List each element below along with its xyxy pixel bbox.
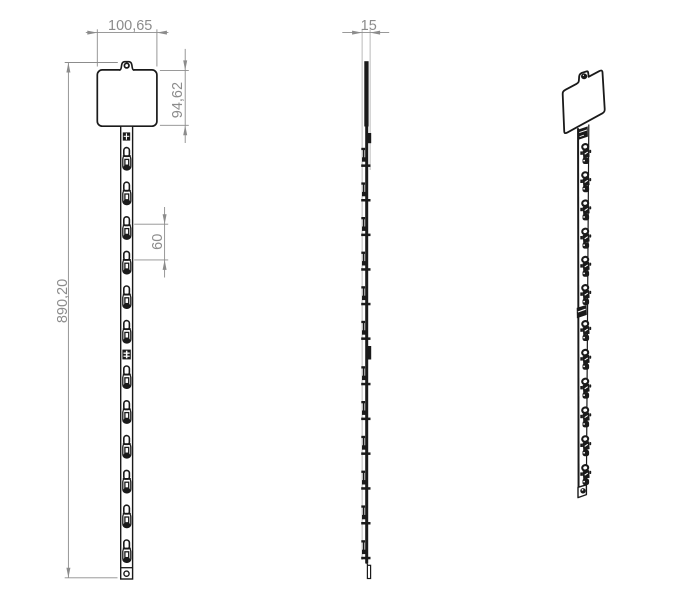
svg-text:60: 60 — [150, 234, 166, 250]
svg-text:890,20: 890,20 — [55, 279, 71, 323]
svg-text:94,62: 94,62 — [170, 82, 186, 118]
svg-text:15: 15 — [361, 18, 377, 34]
svg-text:100,65: 100,65 — [108, 18, 152, 34]
